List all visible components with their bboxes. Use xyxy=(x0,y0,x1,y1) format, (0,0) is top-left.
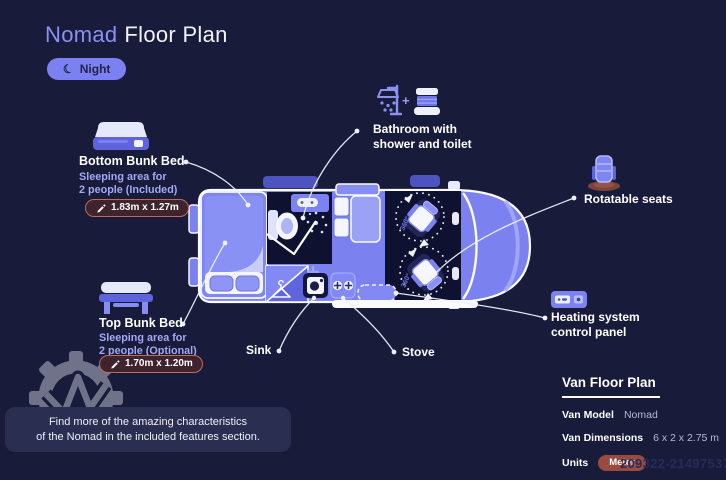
dinette-area xyxy=(334,184,380,242)
wardrobe xyxy=(266,266,308,302)
heating-dashed-zone xyxy=(358,285,396,301)
top-bunk-bed-icon xyxy=(99,280,153,316)
page-title-brand: Nomad xyxy=(45,22,117,47)
spec-row-van-model: Van Model Nomad xyxy=(562,409,720,421)
cab-door-handle-top xyxy=(452,212,459,225)
roof-vent-tab xyxy=(410,175,440,187)
side-mirror-top xyxy=(448,181,460,190)
pencil-icon xyxy=(95,202,106,213)
bed-area xyxy=(201,192,267,298)
bottom-bunk-bed-icon xyxy=(90,117,152,155)
page-title: NomadFloor Plan xyxy=(45,22,228,48)
roof-storage-tab xyxy=(263,176,318,188)
watermark-number: 209322-21497537 xyxy=(620,456,726,471)
stove-label: Stove xyxy=(402,345,435,360)
cab-door-handle-bottom xyxy=(452,267,459,280)
nomad-floor-plan-infographic: Find more of the amazing characteristics… xyxy=(0,0,726,480)
top-bunk-dimensions-badge: 1.70m x 1.20m xyxy=(99,355,203,373)
spec-row-van-dimensions: Van Dimensions 6 x 2 x 2.75 m xyxy=(562,432,720,444)
moon-icon: ☾ xyxy=(61,62,75,77)
pencil-icon xyxy=(109,358,120,369)
bottom-bunk-title: Bottom Bunk Bed xyxy=(79,154,185,168)
rotatable-seat-icon xyxy=(584,152,624,192)
sink-label: Sink xyxy=(246,343,271,358)
bathroom-area xyxy=(267,192,332,264)
bathroom-label: Bathroom with shower and toilet xyxy=(373,122,472,151)
bottom-bunk-sub: Sleeping area for 2 people (Included) xyxy=(79,171,177,197)
rear-door-handles xyxy=(189,205,199,286)
night-mode-label: Night xyxy=(80,62,111,76)
stove-unit xyxy=(331,273,355,298)
sink-unit xyxy=(303,273,328,298)
heating-label: Heating system control panel xyxy=(551,310,640,339)
top-bunk-title: Top Bunk Bed xyxy=(99,316,183,330)
night-mode-toggle[interactable]: ☾ Night xyxy=(47,58,126,80)
toilet-icon xyxy=(413,86,441,116)
page-title-rest: Floor Plan xyxy=(124,22,227,47)
spec-panel-heading: Van Floor Plan xyxy=(562,375,660,398)
heating-panel-icon xyxy=(551,291,587,309)
plus-glyph: + xyxy=(402,93,410,108)
rotatable-seats-label: Rotatable seats xyxy=(584,192,673,207)
bottom-bunk-dimensions-badge: 1.83m x 1.27m xyxy=(85,199,189,217)
shower-icon xyxy=(372,82,402,120)
